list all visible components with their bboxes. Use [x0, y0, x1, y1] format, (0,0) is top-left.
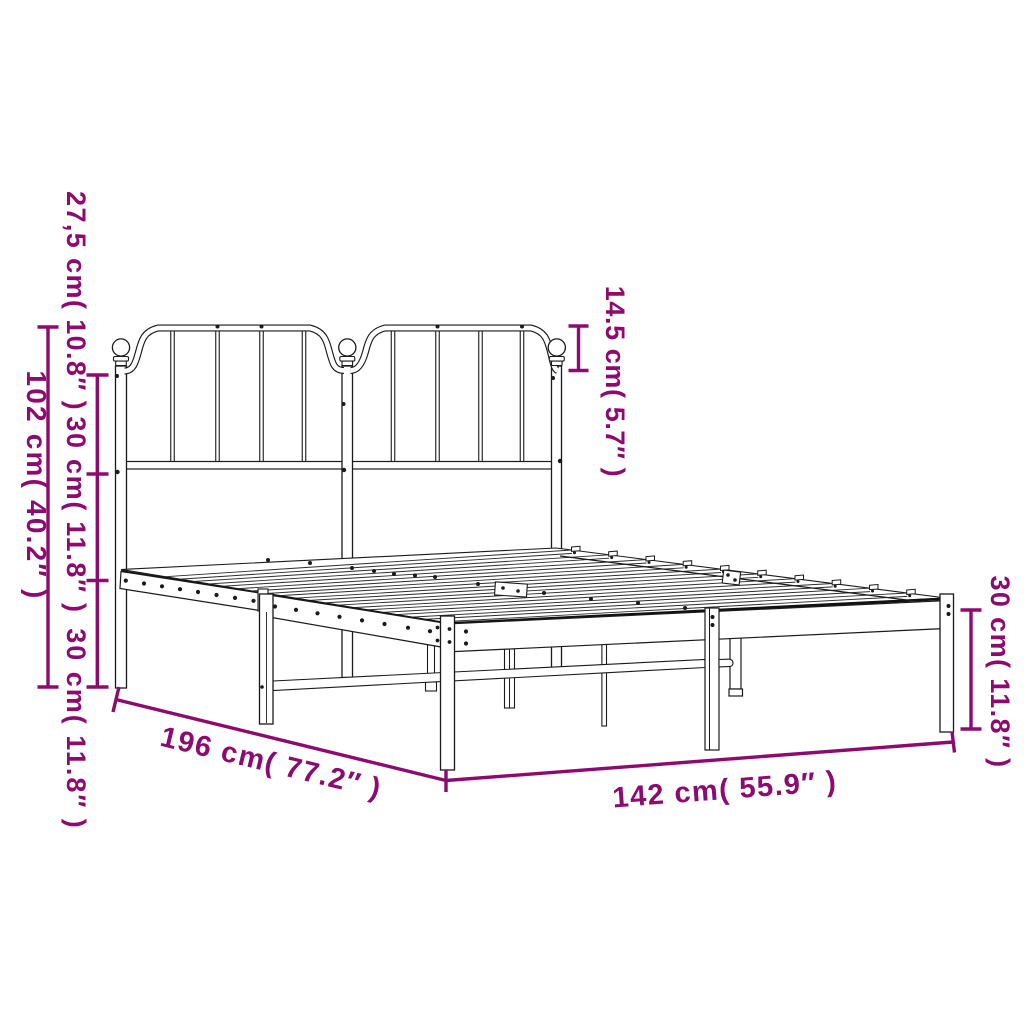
svg-text:102 cm( 40.2″ ): 102 cm( 40.2″ ) — [21, 370, 52, 600]
svg-text:30 cm( 11.8″ ): 30 cm( 11.8″ ) — [61, 416, 91, 613]
svg-text:30 cm( 11.8″ ): 30 cm( 11.8″ ) — [985, 575, 1015, 768]
svg-text:30 cm( 11.8″ ): 30 cm( 11.8″ ) — [61, 628, 91, 830]
svg-text:27,5 cm( 10.8″ ): 27,5 cm( 10.8″ ) — [61, 191, 91, 411]
svg-text:14.5 cm( 5.7″ ): 14.5 cm( 5.7″ ) — [600, 286, 630, 478]
